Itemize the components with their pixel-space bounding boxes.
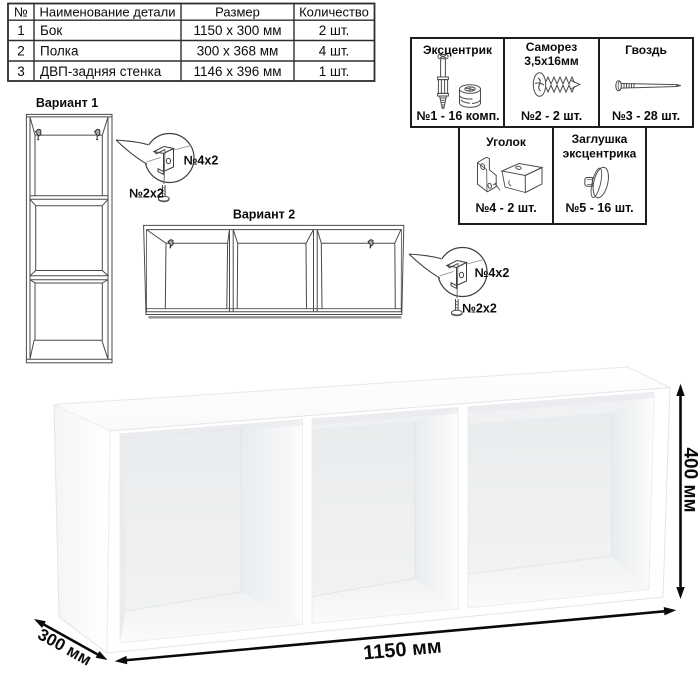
svg-text:Размер: Размер	[215, 5, 260, 20]
svg-text:Уголок: Уголок	[486, 135, 527, 149]
svg-text:Эксцентрик: Эксцентрик	[423, 43, 493, 57]
svg-text:№3 - 28 шт.: №3 - 28 шт.	[612, 109, 680, 123]
svg-text:4 шт.: 4 шт.	[319, 44, 350, 59]
svg-text:Наименование детали: Наименование детали	[40, 5, 176, 20]
svg-text:3: 3	[17, 64, 25, 79]
svg-text:№4х2: №4х2	[184, 154, 219, 168]
svg-text:300 х 368 мм: 300 х 368 мм	[197, 44, 279, 59]
svg-text:Саморез: Саморез	[526, 40, 578, 54]
svg-text:№4х2: №4х2	[475, 266, 510, 280]
svg-text:№5 - 16 шт.: №5 - 16 шт.	[565, 201, 633, 215]
svg-text:эксцентрика: эксцентрика	[563, 147, 637, 161]
svg-text:1150 х 300 мм: 1150 х 300 мм	[193, 23, 281, 38]
svg-text:Полка: Полка	[40, 44, 79, 59]
svg-text:Вариант 2: Вариант 2	[233, 208, 295, 222]
svg-text:Количество: Количество	[299, 5, 369, 20]
svg-text:400 мм: 400 мм	[680, 447, 700, 512]
svg-text:2: 2	[17, 44, 25, 59]
svg-text:№1 - 16 комп.: №1 - 16 комп.	[416, 109, 499, 123]
svg-text:№2 - 2 шт.: №2 - 2 шт.	[521, 109, 582, 123]
svg-text:№2х2: №2х2	[129, 187, 164, 201]
svg-text:Гвоздь: Гвоздь	[625, 43, 667, 57]
svg-text:2 шт.: 2 шт.	[319, 23, 350, 38]
svg-text:№2х2: №2х2	[462, 302, 497, 316]
svg-text:ДВП-задняя стенка: ДВП-задняя стенка	[40, 64, 162, 79]
svg-text:3,5х16мм: 3,5х16мм	[524, 54, 579, 68]
svg-text:Заглушка: Заглушка	[572, 132, 628, 146]
svg-text:Бок: Бок	[40, 23, 62, 38]
svg-text:Вариант 1: Вариант 1	[36, 96, 98, 110]
svg-text:№: №	[14, 5, 28, 20]
svg-text:1 шт.: 1 шт.	[319, 64, 350, 79]
svg-text:1146 х 396 мм: 1146 х 396 мм	[193, 64, 281, 79]
svg-text:1: 1	[17, 23, 25, 38]
svg-text:№4 - 2 шт.: №4 - 2 шт.	[475, 201, 536, 215]
